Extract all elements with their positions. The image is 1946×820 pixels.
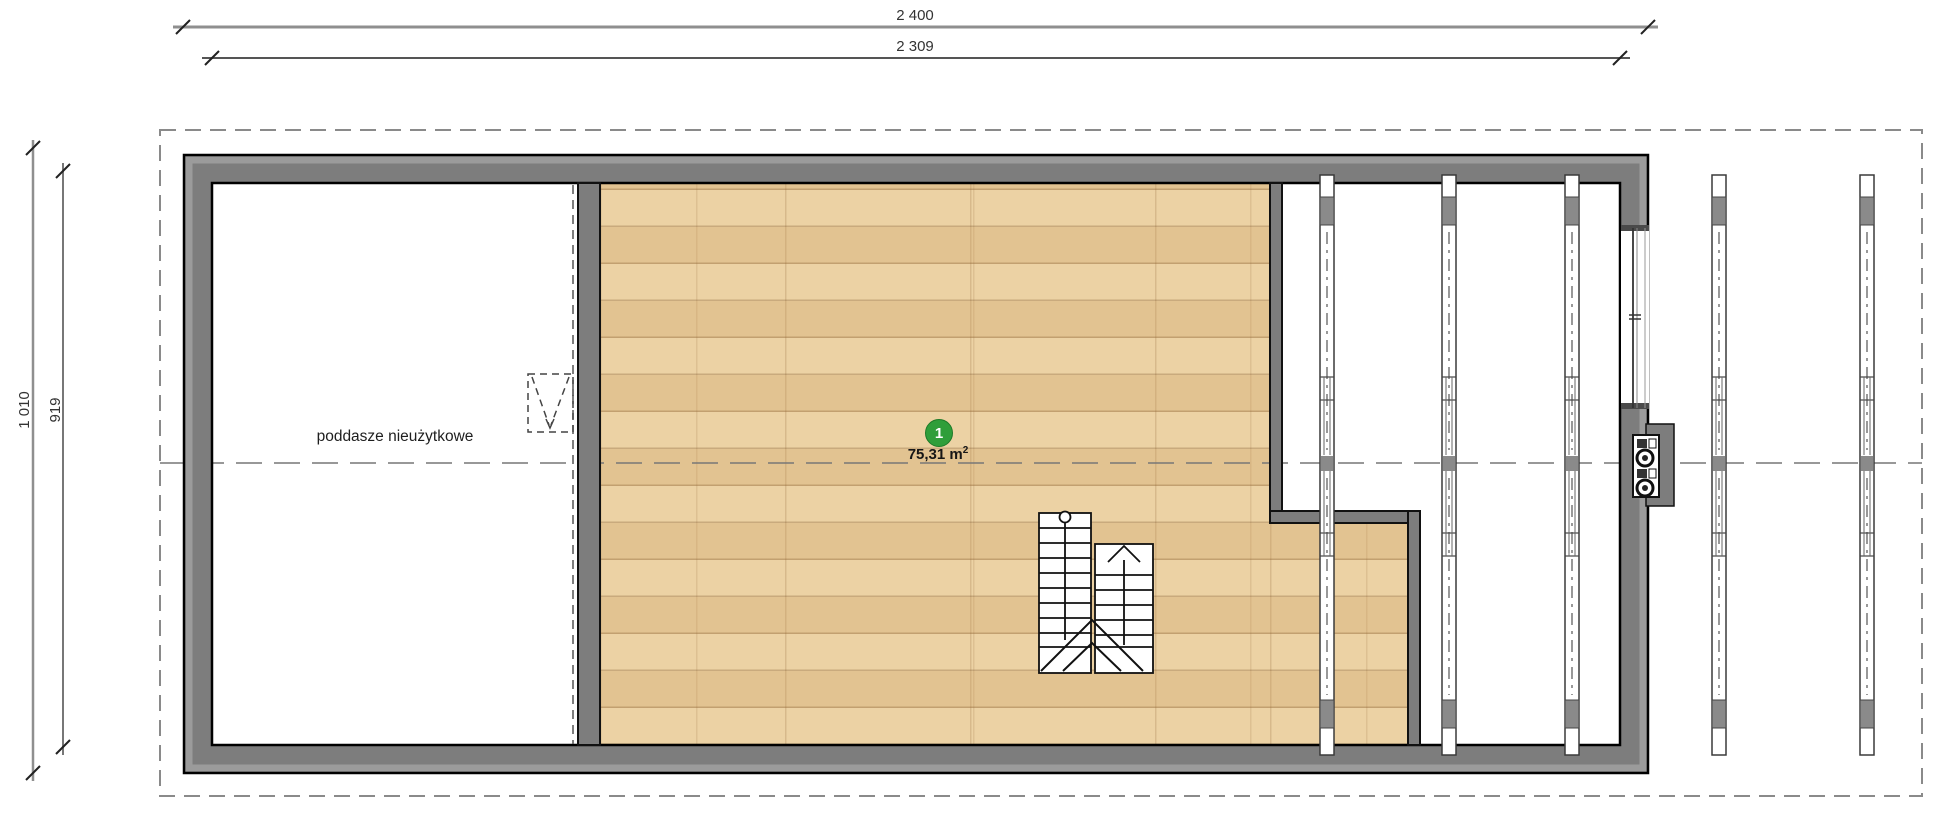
truss-strip-outer-2 (1860, 175, 1874, 755)
truss-strip-outer-1 (1712, 175, 1726, 755)
truss-strips (1320, 175, 1874, 755)
truss-strip-1 (1320, 175, 1334, 755)
dimension-label-left-inner: 919 (47, 350, 63, 470)
room-label-attic: poddasze nieużytkowe (250, 428, 540, 446)
truss-strip-2 (1442, 175, 1456, 755)
truss-strip-3 (1565, 175, 1579, 755)
right-wall-window (1621, 225, 1649, 409)
dimension-label-left-outer: 1 010 (16, 350, 32, 470)
room-number-badge: 1 (925, 419, 953, 447)
dimension-label-top-outer: 2 400 (845, 7, 985, 25)
dimension-label-top-inner: 2 309 (845, 38, 985, 56)
room-area-superscript: 2 (963, 445, 969, 456)
room-area-value: 75,31 m (908, 446, 963, 463)
flue-block (1633, 424, 1674, 506)
floor-plan-canvas: 2 400 2 309 1 010 919 poddasze nieużytko… (0, 0, 1946, 820)
interior-walls (578, 183, 1420, 745)
staircase (1039, 512, 1153, 674)
room-area-label: 75,31 m2 (878, 445, 998, 463)
attic-hatch-symbol (528, 374, 573, 432)
plan-linework (0, 0, 1946, 820)
exterior-walls (184, 155, 1648, 773)
